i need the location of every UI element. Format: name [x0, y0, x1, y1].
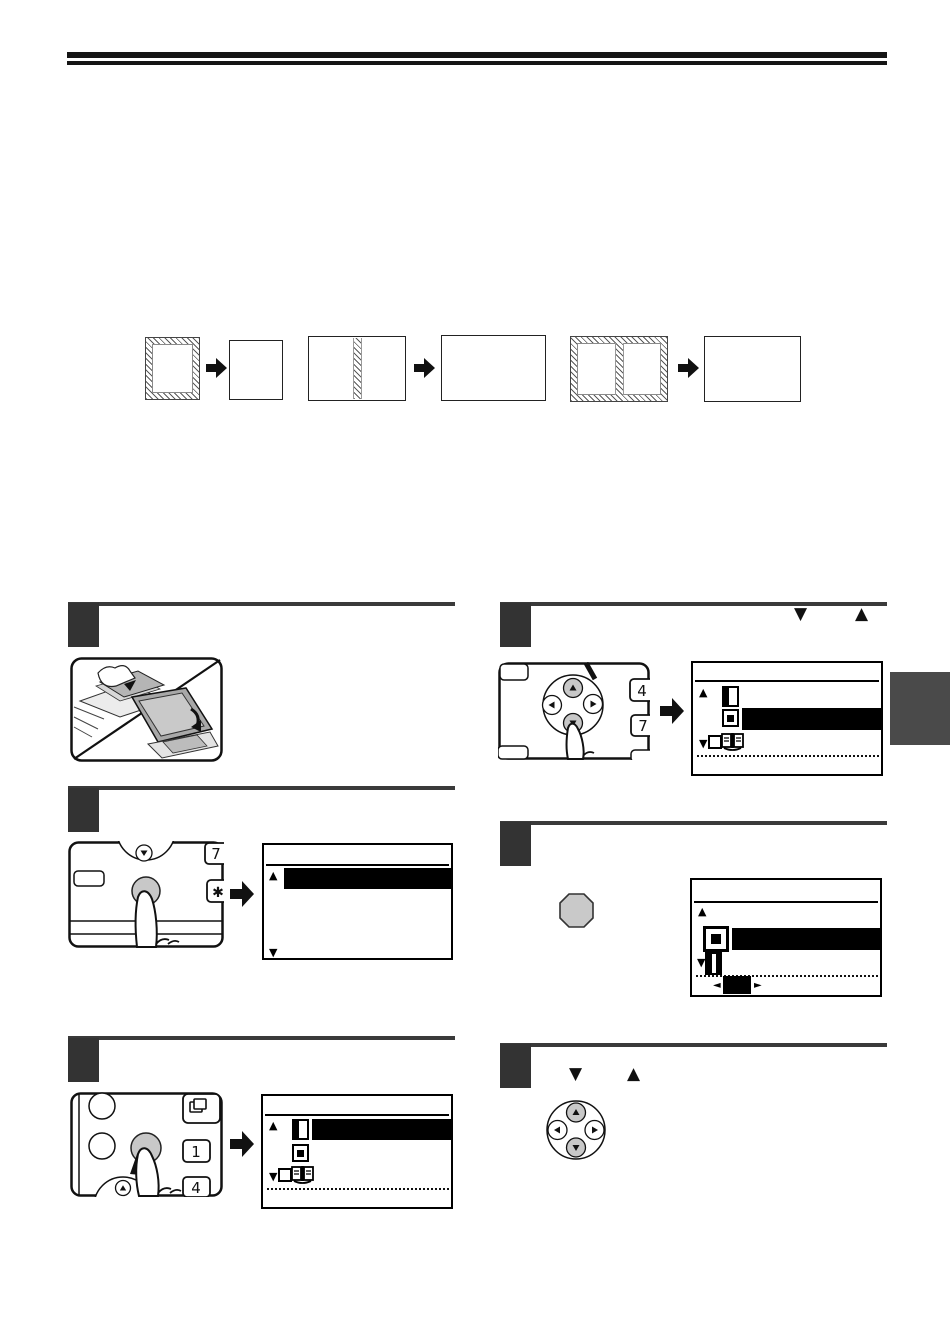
- edge-erase-icon: [703, 926, 729, 952]
- margin-shift-icon: [292, 1119, 309, 1140]
- step-4-number-box: [500, 603, 531, 647]
- copy-landscape-plain: [441, 335, 546, 401]
- lcd-screen-step4: ▲ ▼: [691, 661, 883, 776]
- scroll-up-icon: ▲: [269, 870, 277, 881]
- operation-panel-copy-menu: 1 4: [70, 1092, 223, 1197]
- step-2-rule: [68, 786, 455, 790]
- center-erase-bar: [712, 954, 716, 973]
- manual-page: 7 ✱ ▲ ▼ 1 4: [0, 0, 950, 1341]
- key-4-label: 4: [191, 1179, 201, 1197]
- step-2-number-box: [68, 788, 99, 832]
- selector-value-box: [723, 976, 751, 994]
- step-3-rule: [68, 1036, 455, 1040]
- lcd-title-rule: [265, 1114, 449, 1116]
- step-1-number-box: [68, 603, 99, 647]
- lcd-title-rule: [266, 864, 449, 866]
- operation-panel-special-function: 7 ✱: [68, 841, 224, 948]
- scroll-down-icon: ▼: [699, 738, 707, 749]
- margin-shift-icon: [722, 686, 739, 707]
- step-5-rule: [500, 821, 887, 825]
- overview-diagram: [0, 330, 950, 410]
- key-4-label: 4: [637, 682, 647, 700]
- key-asterisk-label: ✱: [212, 885, 224, 901]
- chapter-tab: [890, 672, 950, 745]
- arrow-right-icon: [230, 1131, 254, 1157]
- key-1-label: 1: [191, 1143, 201, 1161]
- erase-icon: [292, 1144, 309, 1162]
- key-7-label: 7: [638, 717, 648, 735]
- margin-shift-bar: [294, 1121, 299, 1138]
- original-landscape-border-and-center-hatch: [570, 336, 668, 402]
- checkbox-square-icon: [278, 1168, 292, 1182]
- erase-core: [297, 1150, 304, 1157]
- dotted-divider: [697, 755, 879, 757]
- scroll-up-icon: ▲: [269, 1120, 277, 1131]
- copy-portrait-plain: [229, 340, 283, 400]
- arrow-right-icon: [206, 358, 227, 378]
- lcd-title-rule: [695, 680, 879, 682]
- margin-shift-bar: [724, 688, 729, 705]
- heading-up-key-glyph: ▲: [627, 1066, 640, 1083]
- highlighted-row: [742, 708, 881, 730]
- step-5-number-box: [500, 822, 531, 866]
- dual-page-copy-icon: [721, 732, 744, 751]
- copy-landscape-plain: [704, 336, 801, 402]
- arrow-right-icon: [230, 881, 254, 907]
- step-3-number-box: [68, 1038, 99, 1082]
- scroll-up-icon: ▲: [698, 906, 706, 917]
- lcd-screen-step2: ▲ ▼: [262, 843, 453, 960]
- selector-left-icon: ◄: [713, 981, 721, 991]
- sheet-inner: [152, 344, 193, 393]
- selector-right-icon: ►: [754, 981, 762, 991]
- step-6-rule: [500, 1043, 887, 1047]
- highlighted-row: [732, 928, 880, 950]
- original-landscape-center-hatch: [308, 336, 406, 401]
- top-rule-lower: [67, 61, 887, 65]
- arrow-right-icon: [660, 698, 684, 724]
- dotted-divider: [267, 1188, 449, 1190]
- arrow-pad-icon: [545, 1099, 607, 1161]
- step-1-rule: [68, 602, 455, 606]
- highlighted-row: [284, 868, 451, 889]
- original-portrait-hatched-border: [145, 337, 200, 400]
- key-7-label: 7: [211, 845, 221, 863]
- heading-down-key-glyph: ▼: [569, 1066, 582, 1083]
- checkbox-square-icon: [708, 735, 722, 749]
- lcd-screen-step3: ▲ ▼: [261, 1094, 453, 1209]
- arrow-right-icon: [414, 358, 435, 378]
- small-key-icon: [74, 871, 104, 886]
- center-hatch-strip: [353, 338, 362, 399]
- center-hatch-strip: [615, 343, 624, 395]
- arrow-right-icon: [678, 358, 699, 378]
- scroll-up-icon: ▲: [699, 687, 707, 698]
- erase-core: [727, 715, 734, 722]
- heading-down-key-glyph: ▼: [794, 606, 807, 623]
- erase-core: [711, 934, 721, 944]
- scroll-down-icon: ▼: [269, 1171, 277, 1182]
- dual-page-copy-icon: [291, 1165, 314, 1184]
- top-rule-upper: [67, 52, 887, 58]
- lcd-title-rule: [694, 901, 878, 903]
- step-6-number-box: [500, 1044, 531, 1088]
- lcd-screen-step5: ▲ ▼ ◄ ►: [690, 878, 882, 997]
- operation-panel-arrow-pad: 4 7: [498, 662, 650, 760]
- erase-icon: [722, 709, 739, 727]
- step-4-rule: [500, 602, 887, 606]
- heading-up-key-glyph: ▲: [855, 606, 868, 623]
- highlighted-row: [312, 1119, 451, 1140]
- center-erase-icon: [705, 952, 722, 975]
- scroll-down-icon: ▼: [269, 947, 277, 958]
- ok-key-octagon-icon: [558, 892, 595, 929]
- place-original-illustration: [70, 657, 223, 762]
